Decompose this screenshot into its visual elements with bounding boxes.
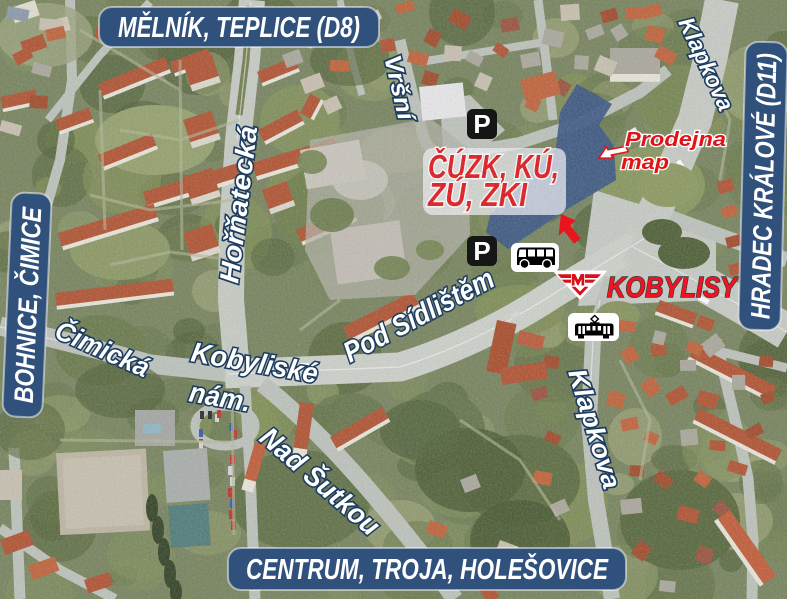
- svg-text:MĚLNÍK, TEPLICE (D8): MĚLNÍK, TEPLICE (D8): [118, 10, 360, 44]
- svg-text:map: map: [621, 152, 669, 174]
- svg-text:P: P: [473, 109, 490, 139]
- svg-text:KOBYLISY: KOBYLISY: [607, 272, 739, 304]
- svg-text:CENTRUM, TROJA, HOLEŠOVICE: CENTRUM, TROJA, HOLEŠOVICE: [246, 552, 609, 586]
- svg-text:Prodejna: Prodejna: [625, 129, 726, 151]
- svg-text:P: P: [473, 236, 490, 266]
